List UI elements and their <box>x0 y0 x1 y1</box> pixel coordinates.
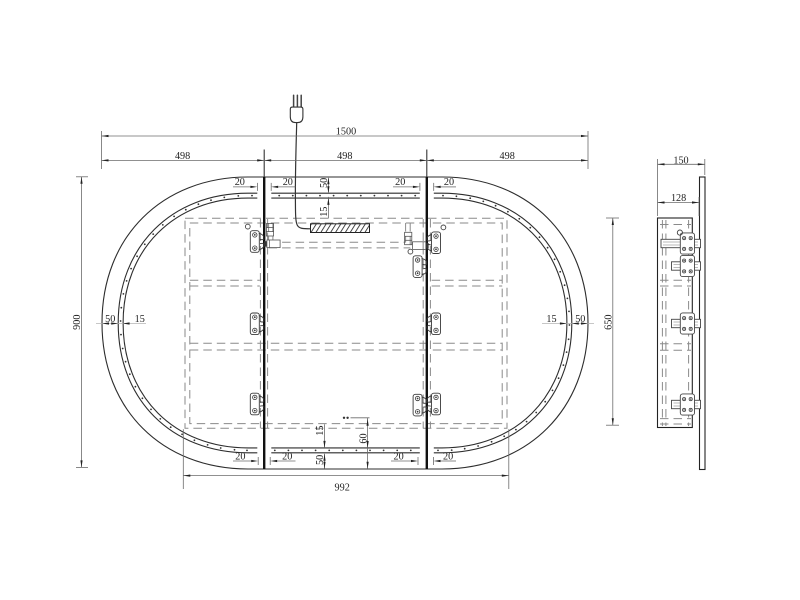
svg-text:20: 20 <box>283 177 293 188</box>
svg-text:15: 15 <box>546 314 556 325</box>
svg-text:50: 50 <box>575 314 585 325</box>
svg-text:900: 900 <box>72 315 83 330</box>
svg-text:1500: 1500 <box>336 127 356 138</box>
svg-text:15: 15 <box>135 314 145 325</box>
svg-text:60: 60 <box>358 433 369 443</box>
svg-text:992: 992 <box>335 482 350 493</box>
svg-text:20: 20 <box>444 177 454 188</box>
svg-text:128: 128 <box>671 193 686 204</box>
svg-text:20: 20 <box>235 452 245 463</box>
svg-text:50: 50 <box>319 178 330 188</box>
svg-text:15: 15 <box>319 207 330 217</box>
svg-text:20: 20 <box>235 177 245 188</box>
svg-text:20: 20 <box>394 452 404 463</box>
svg-text:650: 650 <box>604 315 615 330</box>
svg-text:150: 150 <box>673 155 688 166</box>
svg-text:498: 498 <box>175 151 190 162</box>
svg-text:15: 15 <box>315 426 326 436</box>
svg-text:498: 498 <box>500 151 515 162</box>
svg-text:20: 20 <box>395 177 405 188</box>
svg-text:498: 498 <box>337 151 352 162</box>
svg-text:20: 20 <box>443 452 453 463</box>
svg-text:50: 50 <box>105 314 115 325</box>
svg-text:50: 50 <box>315 455 326 465</box>
svg-text:20: 20 <box>282 452 292 463</box>
